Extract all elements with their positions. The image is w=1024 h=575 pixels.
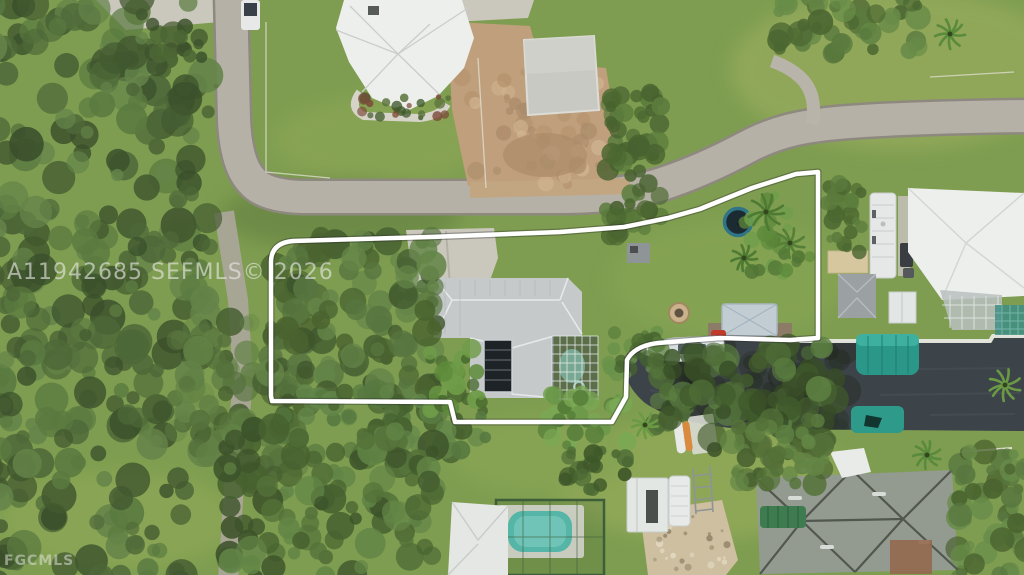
- rv-top-left: [241, 0, 260, 30]
- aerial-scene: [0, 0, 1024, 575]
- mls-watermark: A11942685 SEFMLS© 2026: [7, 260, 334, 285]
- trees-above-southeast-house: [720, 408, 835, 496]
- brick-patio: [890, 540, 932, 574]
- teal-boat-canopy-north: [856, 334, 919, 375]
- white-trailer: [669, 476, 690, 526]
- small-white-shed: [889, 292, 916, 323]
- aerial-photo: A11942685 SEFMLS© 2026 FGCMLS: [0, 0, 1024, 575]
- dark-roof-panels: [484, 340, 512, 392]
- white-shed: [627, 478, 668, 532]
- green-awning: [760, 506, 806, 528]
- pool-shallow: [514, 516, 566, 547]
- concrete-pad: [524, 36, 599, 115]
- east-pool-screen: [995, 305, 1024, 335]
- shed-door: [646, 490, 658, 523]
- south-neighbor-pool-home: [448, 500, 604, 575]
- gray-shed: [838, 274, 876, 318]
- provider-watermark: FGCMLS: [4, 553, 74, 569]
- equipment: [903, 268, 914, 278]
- teal-boat-canopy-south: [851, 406, 904, 433]
- fire-pit: [669, 303, 689, 323]
- parked-rv: [870, 193, 896, 278]
- utility-shed: [627, 243, 650, 263]
- pool-house-roof: [448, 502, 508, 575]
- chimney: [368, 6, 379, 15]
